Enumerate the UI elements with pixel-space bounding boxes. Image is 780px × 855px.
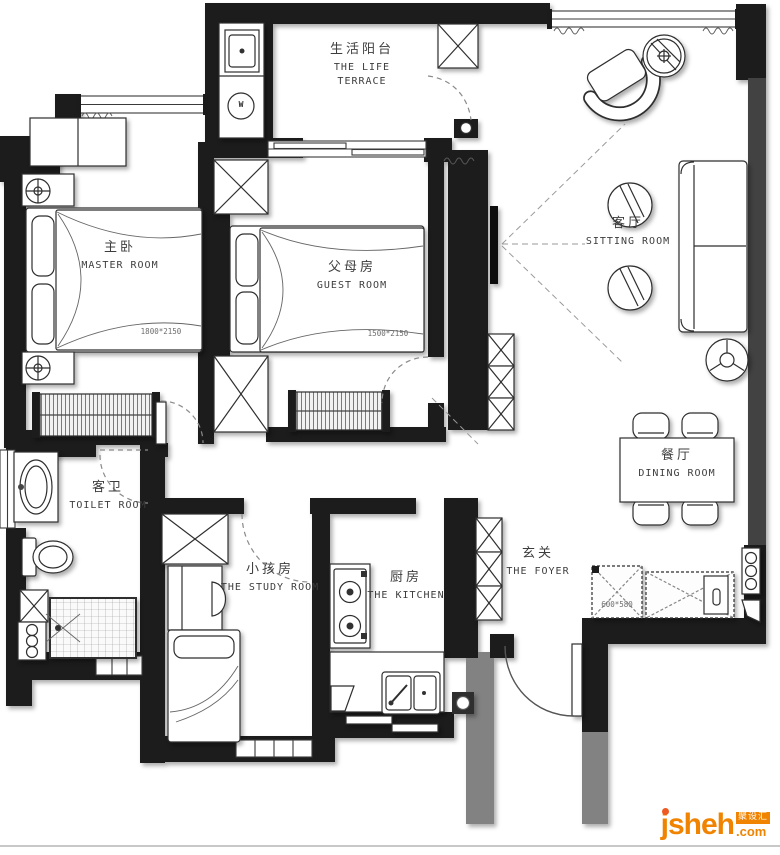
foyer-name-en: THE FOYER [468,566,608,578]
nightstand-top [22,174,74,206]
foyer-cabinet-2 [646,572,734,618]
guest-wardrobe [288,390,390,432]
master-door-leaf [156,402,166,444]
floorplan-drawing [0,0,780,855]
master-bed-dimension: 1800*2150 [121,327,201,336]
label-foyer: 玄关 THE FOYER [468,546,608,578]
label-guest: 父母房 GUEST ROOM [282,260,422,292]
label-kitchen: 厨房 THE KITCHEN [336,570,476,602]
guest-name-zh: 父母房 [282,260,422,275]
logo-dot-icon [662,808,669,815]
sitting-name-zh: 客厅 [558,216,698,231]
toilet [22,538,73,576]
study-cabinet [162,514,228,564]
label-dining: 餐厅 DINING ROOM [607,448,747,480]
floor-drain [452,692,474,714]
brand-logo: jsheh 聚设汇 .com [661,810,770,840]
master-name-zh: 主卧 [50,240,190,255]
sitting-name-en: SITTING ROOM [558,236,698,248]
round-chair-2 [608,266,652,310]
guest-name-en: GUEST ROOM [282,280,422,292]
entry-door-leaf [572,644,582,716]
floor-plan: 生活阳台 THE LIFE TERRACE 主卧 MASTER ROOM 父母房… [0,0,780,855]
study-bed [168,630,240,742]
study-name-zh: 小孩房 [200,562,340,577]
toilet-name-en: TOILET ROOM [38,500,178,512]
terrace-duct-box [438,24,478,68]
nightstand-bottom [22,352,74,384]
washer-label: W [229,100,253,109]
master-wardrobe [32,392,160,438]
floor-lamp [706,339,748,381]
guest-cabinet-top [214,160,268,214]
master-name-en: MASTER ROOM [50,260,190,272]
terrace-name-zh: 生活阳台 [292,42,432,57]
logo-badge: 聚设汇 [736,812,770,824]
terrace-door-swing [428,76,471,120]
label-toilet: 客卫 TOILET ROOM [38,480,178,512]
logo-brand-text: jsheh [661,808,734,841]
laundry-unit [219,23,264,138]
dining-name-zh: 餐厅 [607,448,747,463]
foyer-name-zh: 玄关 [468,546,608,561]
toilet-shelf [18,622,46,660]
tv [490,206,498,284]
study-name-en: THE STUDY ROOM [200,582,340,594]
foyer-cabinet-dimension: 600*580 [577,600,657,609]
master-door-swing [161,401,203,443]
label-terrace: 生活阳台 THE LIFE TERRACE [292,42,432,88]
kitchen-sink [382,672,440,714]
kitchen-name-en: THE KITCHEN [336,590,476,602]
shower-area [46,598,136,658]
footer-divider [0,845,780,847]
guest-bed-dimension: 1500*2150 [348,329,428,338]
corridor-cabinet-column [488,334,514,430]
side-table [643,35,685,77]
guest-cabinet-bottom [214,356,268,432]
entry-door-swing [505,646,574,716]
label-master: 主卧 MASTER ROOM [50,240,190,272]
logo-tld: .com [736,825,766,839]
shower-head [55,625,61,631]
toilet-cabinet [20,590,48,622]
label-sitting: 客厅 SITTING ROOM [558,216,698,248]
dining-name-en: DINING ROOM [607,468,747,480]
terrace-door-pivot [454,119,478,138]
terrace-name-en1: THE LIFE [292,62,432,74]
master-dresser [30,118,126,166]
kitchen-name-zh: 厨房 [336,570,476,585]
label-study: 小孩房 THE STUDY ROOM [200,562,340,594]
terrace-name-en2: TERRACE [292,76,432,88]
toilet-name-zh: 客卫 [38,480,178,495]
